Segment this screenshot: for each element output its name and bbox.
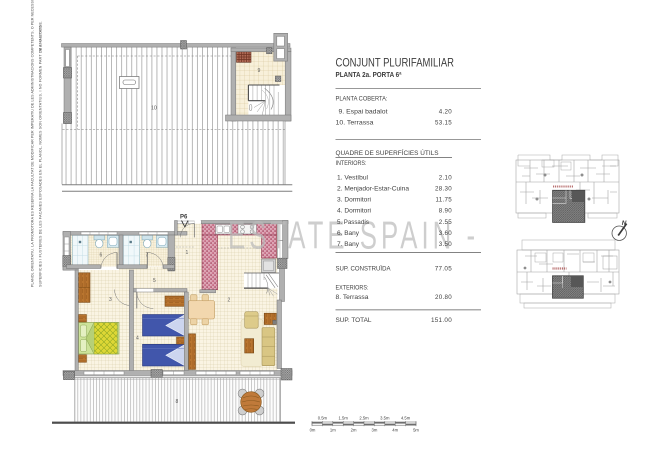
svg-text:8.90: 8.90 <box>439 208 453 215</box>
svg-text:PLANTA 2a. PORTA 6ª: PLANTA 2a. PORTA 6ª <box>336 70 402 79</box>
svg-text:4.5m: 4.5m <box>401 416 411 421</box>
svg-text:2.5m: 2.5m <box>359 416 369 421</box>
svg-text:SUP. TOTAL: SUP. TOTAL <box>336 317 373 324</box>
svg-text:SUPERFICIES I FUSTERIES DE LES: SUPERFICIES I FUSTERIES DE LES FACANES E… <box>39 21 43 287</box>
svg-text:CONJUNT PLURIFAMILIAR: CONJUNT PLURIFAMILIAR <box>336 57 455 70</box>
svg-text:2m: 2m <box>351 428 357 433</box>
svg-text:4. Dormitori: 4. Dormitori <box>337 208 371 215</box>
svg-text:5: 5 <box>153 278 156 284</box>
svg-text:77.05: 77.05 <box>435 265 452 272</box>
svg-text:20.80: 20.80 <box>435 294 452 301</box>
svg-text:3.50: 3.50 <box>439 241 453 248</box>
svg-text:6. Bany: 6. Bany <box>337 230 360 237</box>
svg-text:QUADRE DE SUPERFÍCIES ÚTILS: QUADRE DE SUPERFÍCIES ÚTILS <box>336 148 440 157</box>
svg-text:N: N <box>622 220 627 227</box>
svg-text:3m: 3m <box>371 428 377 433</box>
svg-text:PLANOL ORIENTATIU. LA PROMOTOR: PLANOL ORIENTATIU. LA PROMOTORA ES RESER… <box>31 0 35 287</box>
svg-text:1: 1 <box>186 250 189 256</box>
svg-text:1m: 1m <box>330 428 336 433</box>
svg-text:1.5m: 1.5m <box>339 416 349 421</box>
svg-text:6: 6 <box>100 253 103 259</box>
svg-text:5. Passadís: 5. Passadís <box>337 219 369 226</box>
svg-text:11.75: 11.75 <box>435 197 452 204</box>
svg-text:EXTERIORS:: EXTERIORS: <box>336 284 369 291</box>
svg-text:5m: 5m <box>413 428 419 433</box>
svg-text:2. Menjador-Estar-Cuina: 2. Menjador-Estar-Cuina <box>337 186 410 193</box>
svg-text:PLANTA COBERTA:: PLANTA COBERTA: <box>336 96 388 103</box>
svg-text:3. Dormitori: 3. Dormitori <box>337 197 371 204</box>
svg-text:7: 7 <box>146 253 149 259</box>
svg-text:2: 2 <box>228 298 231 304</box>
svg-text:151.00: 151.00 <box>431 317 452 324</box>
svg-text:P6: P6 <box>180 215 188 221</box>
svg-text:0.5m: 0.5m <box>318 416 328 421</box>
svg-text:INTERIORS:: INTERIORS: <box>336 160 367 167</box>
svg-text:7. Bany: 7. Bany <box>337 241 360 248</box>
svg-text:1. Vestíbul: 1. Vestíbul <box>337 174 368 181</box>
svg-text:3: 3 <box>109 297 112 303</box>
svg-text:28.30: 28.30 <box>435 186 452 193</box>
svg-text:3.5m: 3.5m <box>380 416 390 421</box>
svg-text:9. Espai badalot: 9. Espai badalot <box>339 109 388 116</box>
svg-text:SUP. CONSTRUÏDA: SUP. CONSTRUÏDA <box>336 264 392 272</box>
svg-text:3.60: 3.60 <box>439 230 453 237</box>
svg-text:MAIG 2022: MAIG 2022 <box>38 25 43 51</box>
svg-text:0m: 0m <box>310 428 316 433</box>
svg-text:2.55: 2.55 <box>439 219 453 226</box>
svg-text:2.10: 2.10 <box>439 174 453 181</box>
svg-text:4m: 4m <box>392 428 398 433</box>
svg-text:4: 4 <box>136 336 139 342</box>
svg-text:8: 8 <box>176 399 179 405</box>
svg-text:10: 10 <box>151 106 157 112</box>
svg-text:53.15: 53.15 <box>435 119 452 126</box>
svg-text:8. Terrassa: 8. Terrassa <box>336 294 370 301</box>
svg-text:10. Terrassa: 10. Terrassa <box>336 119 375 126</box>
svg-text:9: 9 <box>258 68 261 74</box>
svg-text:4.20: 4.20 <box>439 109 453 116</box>
